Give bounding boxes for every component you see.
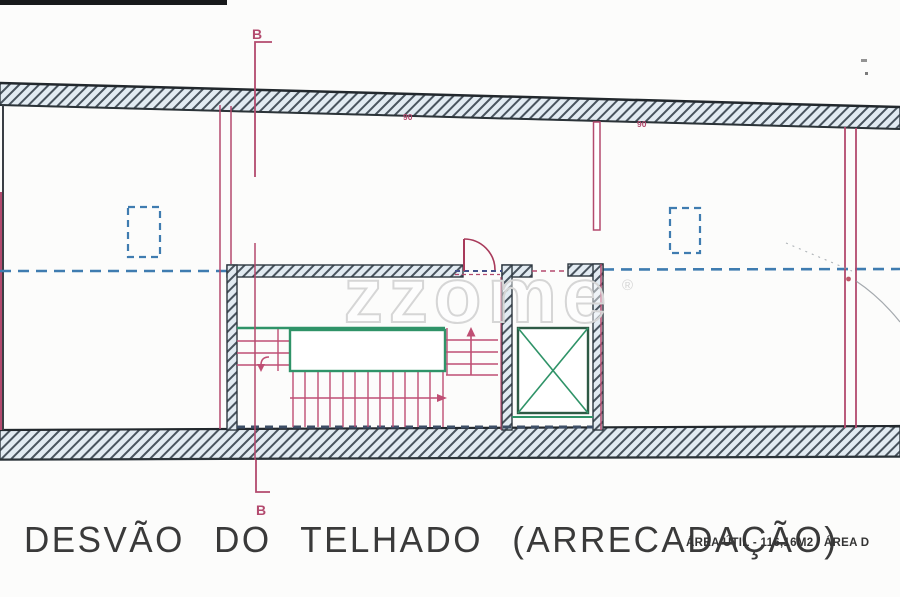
section-marker-b-bottom-label: B — [256, 502, 266, 518]
scan-border-mark — [0, 0, 227, 5]
section-marker-b-top-label: B — [252, 26, 262, 42]
dim-label-90-right: 90 — [637, 119, 647, 129]
dim-label-90-left: 90 — [403, 112, 413, 122]
area-note: ÁREA ÚTIL - 116,16M2 / ÁREA D — [686, 537, 869, 549]
left-edge-lines — [1, 105, 3, 430]
floor-slab-section — [0, 426, 900, 460]
scan-speck-top-right — [861, 59, 867, 62]
roof-slab-section — [0, 83, 900, 129]
elevator-shaft — [512, 328, 593, 417]
scan-speck-top-right-2 — [865, 72, 868, 75]
red-node-mark — [846, 277, 851, 282]
section-marker-b-bottom: B — [256, 460, 270, 518]
scanned-floor-plan-sheet: 90 90 — [0, 0, 900, 597]
watermark-text: zzome — [344, 251, 612, 339]
attic-floor-plan-drawing: 90 90 — [0, 0, 900, 597]
watermark: zzome ® — [344, 251, 633, 339]
scan-scratches — [786, 243, 900, 322]
dashed-opening-left — [128, 207, 160, 257]
watermark-registered-mark: ® — [622, 277, 633, 294]
dashed-opening-right — [670, 208, 700, 253]
